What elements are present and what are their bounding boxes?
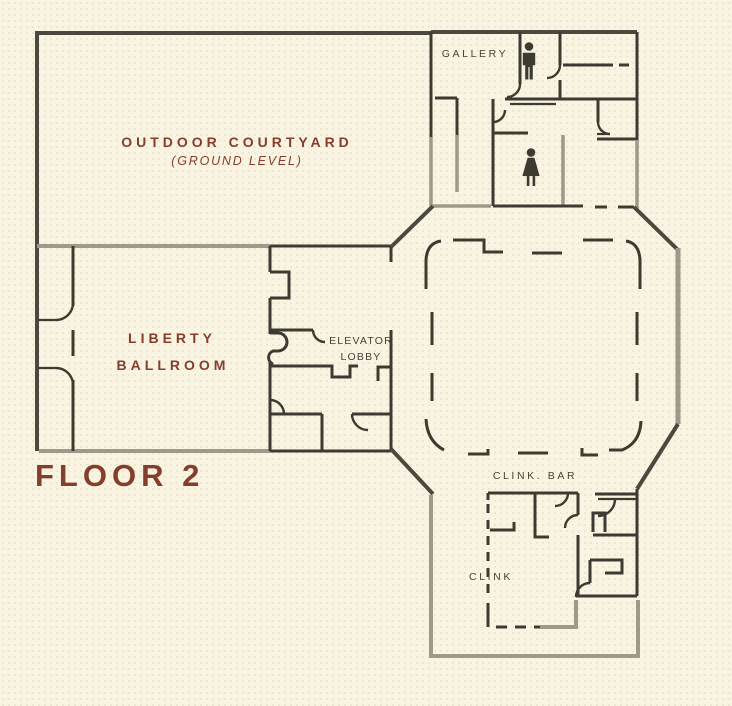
wall-segment bbox=[426, 241, 441, 289]
wall-segment bbox=[453, 240, 503, 252]
wall-segment bbox=[535, 493, 549, 537]
elevator-lobby-label-line2: LOBBY bbox=[340, 351, 381, 363]
wall-segment bbox=[426, 419, 444, 450]
wall-segment bbox=[637, 424, 678, 489]
wall-segment bbox=[527, 148, 536, 157]
wall-segment bbox=[525, 42, 534, 51]
wall-segment bbox=[565, 515, 578, 528]
wall-segment bbox=[391, 449, 433, 494]
wall-segment bbox=[270, 366, 358, 377]
room-labels: OUTDOOR COURTYARD (GROUND LEVEL) LIBERTY… bbox=[35, 48, 577, 583]
wall-segment bbox=[490, 522, 514, 530]
wall-segment bbox=[270, 400, 284, 414]
outdoor-courtyard-label: OUTDOOR COURTYARD bbox=[121, 134, 353, 150]
wall-segment bbox=[313, 330, 325, 342]
elevator-lobby-label-line1: ELEVATOR bbox=[329, 335, 393, 347]
floor-plan-page: OUTDOOR COURTYARD (GROUND LEVEL) LIBERTY… bbox=[0, 0, 732, 706]
floor-plan-svg: OUTDOOR COURTYARD (GROUND LEVEL) LIBERTY… bbox=[0, 0, 732, 706]
mens-restroom-icon bbox=[523, 42, 535, 79]
wall-segment bbox=[507, 84, 520, 97]
womens-restroom-icon bbox=[522, 148, 539, 186]
wall-segment bbox=[626, 241, 640, 289]
wall-segment bbox=[493, 110, 505, 122]
liberty-ballroom-label-line2: BALLROOM bbox=[117, 357, 230, 373]
wall-segment bbox=[609, 421, 641, 450]
wall-segment bbox=[270, 272, 289, 298]
wall-segment bbox=[56, 303, 73, 320]
wall-segment bbox=[547, 65, 560, 78]
wall-segment bbox=[590, 560, 622, 573]
wall-segment bbox=[540, 600, 576, 627]
gallery-label: GALLERY bbox=[442, 48, 508, 60]
wall-segment bbox=[269, 333, 287, 364]
clink-bar-label: CLINK. BAR bbox=[493, 470, 577, 482]
clink-label: CLINK bbox=[469, 571, 513, 583]
wall-segment bbox=[37, 33, 431, 451]
wall-segment bbox=[598, 122, 610, 134]
floor-title: FLOOR 2 bbox=[35, 458, 204, 493]
wall-segment bbox=[468, 449, 488, 454]
wall-segment bbox=[391, 206, 433, 247]
rotunda-outer-walls bbox=[391, 206, 678, 494]
clink-walls bbox=[431, 489, 638, 656]
wall-segment bbox=[555, 493, 568, 506]
rotunda-inner-ring bbox=[426, 240, 641, 455]
courtyard-ballroom-walls bbox=[37, 33, 431, 451]
wall-segment bbox=[522, 158, 539, 186]
wall-segment bbox=[634, 207, 678, 250]
elevator-lobby-walls bbox=[269, 246, 391, 451]
wall-segment bbox=[352, 414, 368, 430]
liberty-ballroom-label-line1: LIBERTY bbox=[128, 330, 216, 346]
outdoor-courtyard-sublabel: (GROUND LEVEL) bbox=[171, 154, 302, 168]
wall-segment bbox=[582, 448, 598, 455]
wall-segment bbox=[378, 367, 391, 381]
wall-segment bbox=[523, 53, 535, 80]
wall-segment bbox=[56, 368, 73, 385]
